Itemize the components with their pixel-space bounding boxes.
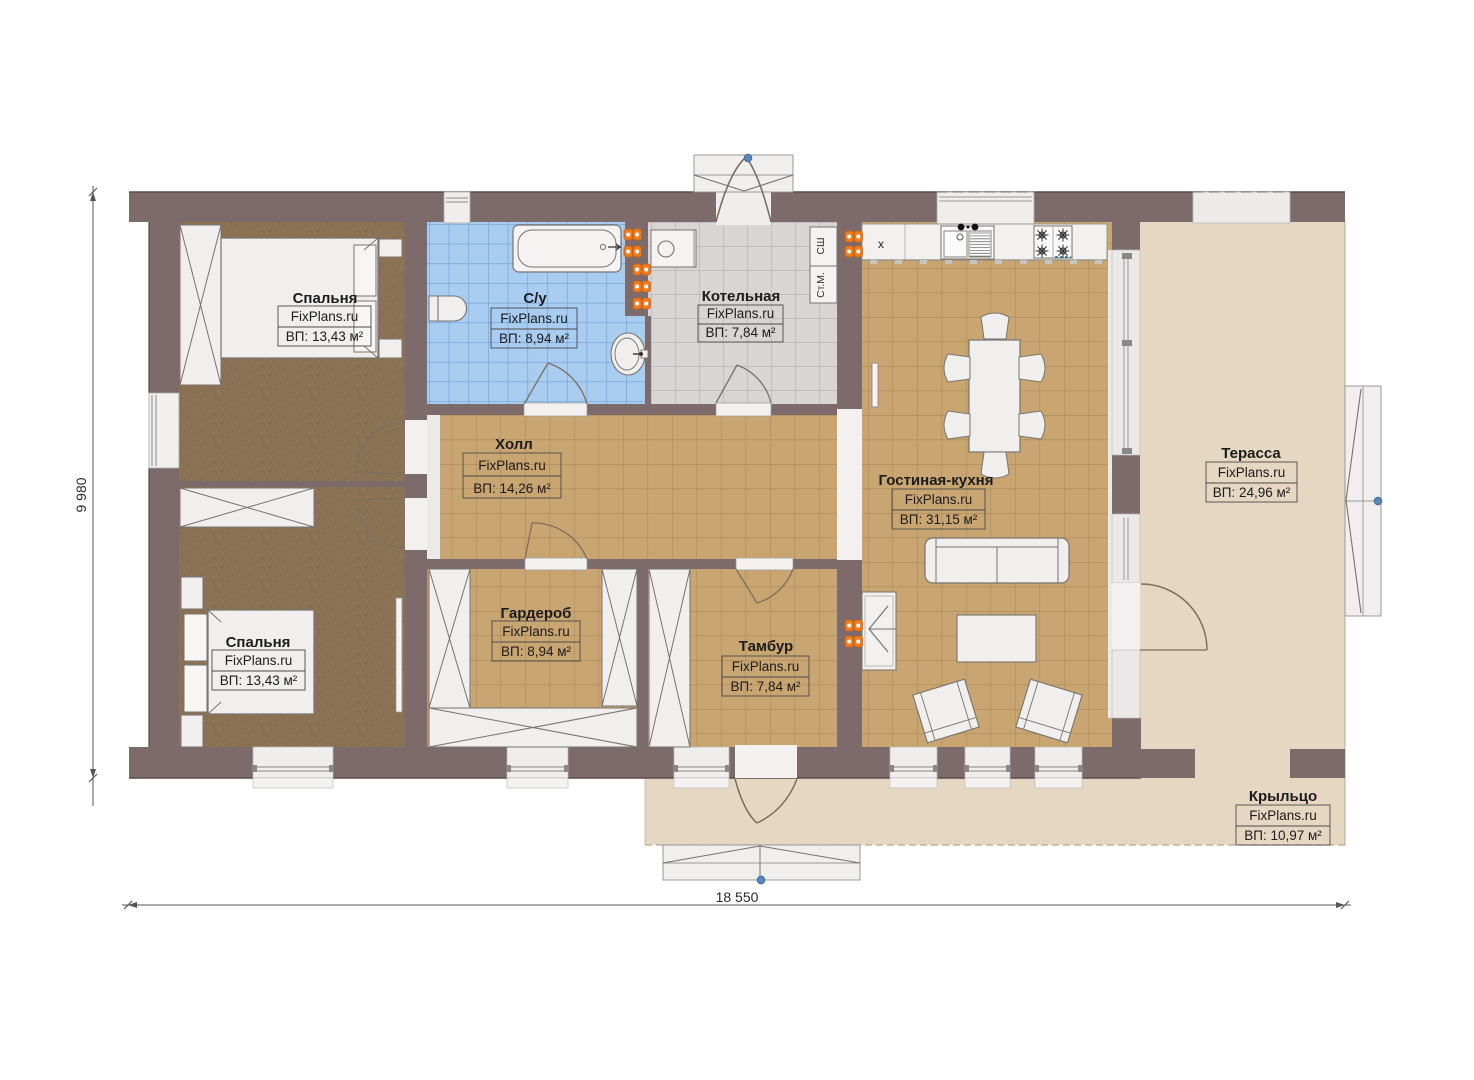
svg-text:FixPlans.ru: FixPlans.ru [291,309,359,324]
svg-text:FixPlans.ru: FixPlans.ru [1218,465,1286,480]
svg-text:FixPlans.ru: FixPlans.ru [478,458,546,473]
svg-text:x: x [878,237,884,251]
svg-text:ВП: 7,84 м²: ВП: 7,84 м² [730,679,801,694]
svg-text:С/у: С/у [523,290,547,307]
svg-text:FixPlans.ru: FixPlans.ru [905,492,973,507]
svg-text:ВП: 24,96 м²: ВП: 24,96 м² [1213,485,1291,500]
svg-text:ВП: 13,43 м²: ВП: 13,43 м² [220,673,298,688]
svg-text:FixPlans.ru: FixPlans.ru [732,659,800,674]
svg-text:ВП: 14,26 м²: ВП: 14,26 м² [473,481,551,496]
svg-text:FixPlans.ru: FixPlans.ru [500,311,568,326]
svg-text:Холл: Холл [495,436,533,453]
svg-text:FixPlans.ru: FixPlans.ru [1249,808,1317,823]
svg-text:Котельная: Котельная [702,288,781,305]
svg-text:Ст.М.: Ст.М. [815,272,827,298]
svg-text:Гостиная-кухня: Гостиная-кухня [879,472,994,489]
svg-text:Крыльцо: Крыльцо [1249,788,1317,805]
svg-text:18 550: 18 550 [716,889,759,905]
svg-text:Тамбур: Тамбур [739,638,793,655]
svg-text:ВП: 8,94 м²: ВП: 8,94 м² [499,331,570,346]
svg-text:FixPlans.ru: FixPlans.ru [707,306,775,321]
svg-text:9 980: 9 980 [73,477,89,512]
svg-text:Гардероб: Гардероб [501,605,572,622]
svg-text:СШ: СШ [815,237,827,254]
svg-text:FixPlans.ru: FixPlans.ru [225,653,293,668]
svg-text:ВП: 13,43 м²: ВП: 13,43 м² [286,329,364,344]
svg-text:ВП: 7,84 м²: ВП: 7,84 м² [705,325,776,340]
svg-text:ВП: 8,94 м²: ВП: 8,94 м² [501,644,572,659]
svg-text:ВП: 10,97 м²: ВП: 10,97 м² [1244,828,1322,843]
svg-text:Спальня: Спальня [226,634,291,651]
svg-text:Спальня: Спальня [293,290,358,307]
svg-text:Терасса: Терасса [1221,445,1281,462]
svg-text:ВП: 31,15 м²: ВП: 31,15 м² [900,512,978,527]
svg-text:FixPlans.ru: FixPlans.ru [502,624,570,639]
